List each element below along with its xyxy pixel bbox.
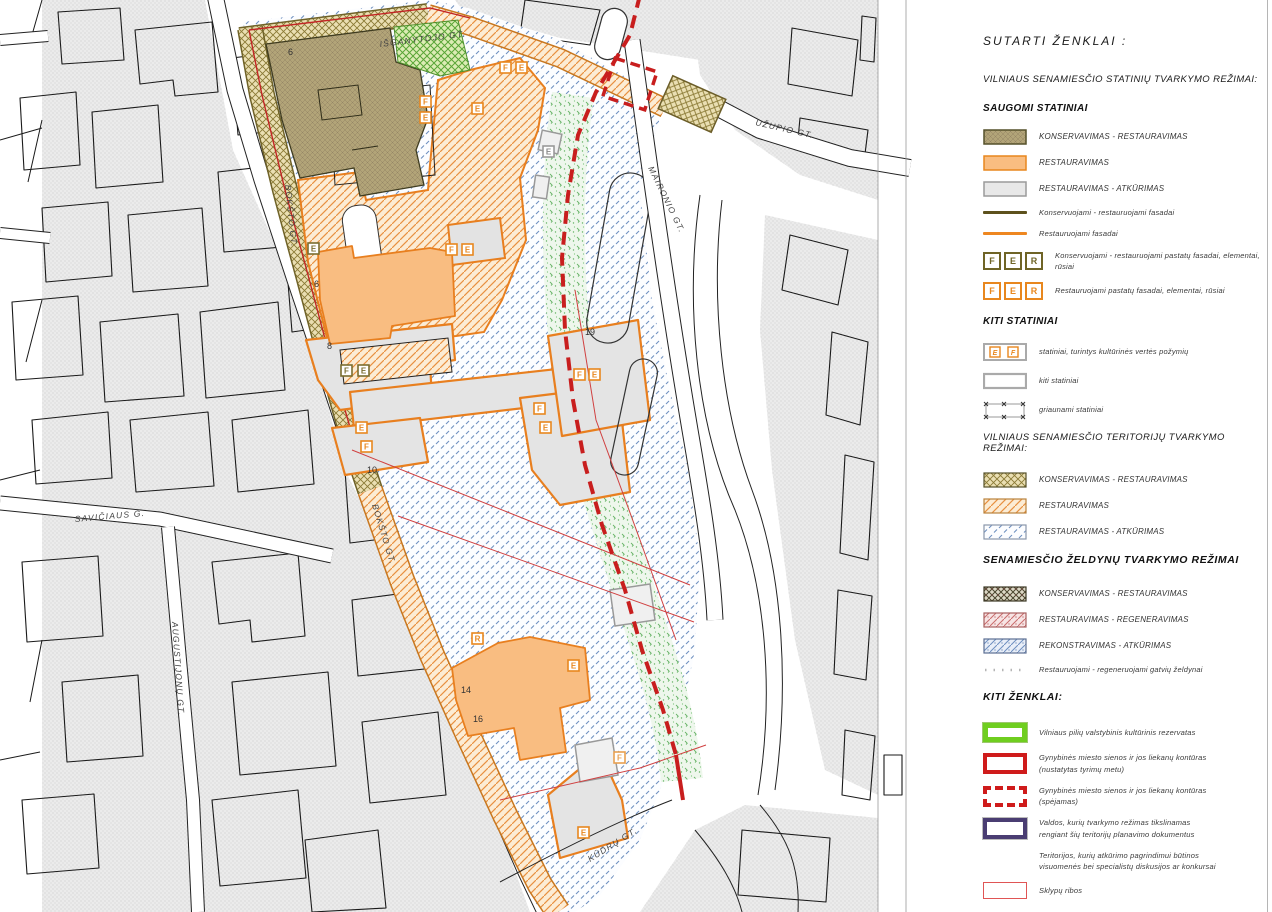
swatch-demolish [983,400,1027,420]
marker-letter: E [546,148,552,157]
swatch-purple-estate [983,818,1027,839]
marker-letter: R [475,635,481,644]
marker-letter: E [543,424,549,433]
swatch-olive-building [983,129,1027,145]
marker-letter: F [503,64,508,73]
plan-sheet: F E E F E E F E F E E F F E F E E R E F … [0,0,1272,912]
legend-heading-greenery: SENAMIESČIO ŽELDYNŲ TVARKYMO REŽIMAI [983,554,1265,566]
swatch-parcel-boundary [983,882,1027,899]
marker-letter: E [311,245,317,254]
swatch-empty [983,855,1027,868]
legend-heading-buildings: VILNIAUS SENAMIESČIO STATINIŲ TVARKYMO R… [983,74,1265,85]
legend-item: Gynybinės miesto sienos ir jos liekanų k… [983,785,1265,808]
legend-item: KONSERVAVIMAS - RESTAURAVIMAS [983,472,1265,488]
legend-heading-other: KITI ŽENKLAI: [983,691,1265,703]
plot-number: 10 [367,465,377,475]
legend-item-label: Konservuojami - restauruojami fasadai [1039,207,1174,218]
swatch-orange-line [983,232,1027,235]
swatch-red-wall [983,753,1027,774]
legend-item-label: RESTAURAVIMAS [1039,500,1109,512]
marker-letter: F [423,98,428,107]
marker-letter: E [571,662,577,671]
legend-item: Restauruojami - regeneruojami gatvių žel… [983,664,1265,675]
legend-item: Sklypų ribos [983,882,1265,899]
marker-letter: E [423,114,429,123]
legend-item-label: Vilniaus pilių valstybinis kultūrinis re… [1039,727,1196,738]
marker-letter: F [617,754,622,763]
legend-item-label: REKONSTRAVIMAS - ATKŪRIMAS [1039,640,1171,652]
marker-letter: F [537,405,542,414]
legend-item-label: Valdos, kurių tvarkymo režimas tikslinam… [1039,817,1195,840]
legend-item-label: Restauruojami - regeneruojami gatvių žel… [1039,664,1203,675]
legend-item: KONSERVAVIMAS - RESTAURAVIMAS [983,129,1265,145]
fer-symbol-olive: F E R [983,252,1043,270]
legend-item: RESTAURAVIMAS - ATKŪRIMAS [983,181,1265,197]
legend-item: Restauruojami fasadai [983,228,1265,239]
city-map: F E E F E E F E F E E F F E F E E R E F … [0,0,955,912]
legend-heading-territories: VILNIAUS SENAMIESČIO TERITORIJŲ TVARKYMO… [983,432,1265,454]
fer-box: F [983,252,1001,270]
legend-item-label: Gynybinės miesto sienos ir jos liekanų k… [1039,785,1206,808]
legend-item-label: KONSERVAVIMAS - RESTAURAVIMAS [1039,588,1188,600]
swatch-green-reserve [983,723,1027,742]
legend-item: RESTAURAVIMAS [983,155,1265,171]
legend-item-label: Teritorijos, kurių atkūrimo pagrindimui … [1039,850,1216,873]
swatch-blue-hatch [983,524,1027,540]
fer-box: E [1004,252,1022,270]
legend-item-label: kiti statiniai [1039,375,1078,386]
legend-item: Teritorijos, kurių atkūrimo pagrindimui … [983,850,1265,873]
legend-subheading-saugomi: SAUGOMI STATINIAI [983,103,1265,114]
legend-item: kiti statiniai [983,372,1265,390]
legend-heading-kiti-statiniai: KITI STATINIAI [983,316,1265,327]
swatch-red-wall-dashed [983,786,1027,807]
fer-box: F [983,282,1001,300]
legend-item: Vilniaus pilių valstybinis kultūrinis re… [983,723,1265,742]
legend-item: F E R Restauruojami pastatų fasadai, ele… [983,282,1265,300]
plot-number: 8 [327,341,332,351]
swatch-blue-dot-hatch [983,638,1027,654]
legend-item: KONSERVAVIMAS - RESTAURAVIMAS [983,586,1265,602]
swatch-cultural-value: E F [983,342,1027,362]
legend-item: Konservuojami - restauruojami fasadai [983,207,1265,218]
marker-letter: E [475,105,481,114]
legend-title: SUTARTI ŽENKLAI : [983,34,1265,48]
fer-symbol-orange: F E R [983,282,1043,300]
legend-item-label: statiniai, turintys kultūrinės vertės po… [1039,346,1188,357]
legend-item: REKONSTRAVIMAS - ATKŪRIMAS [983,638,1265,654]
legend-item-label: Konservuojami - restauruojami pastatų fa… [1055,250,1265,273]
marker-letter: E [519,64,525,73]
plot-number: 6 [314,279,319,289]
marker-letter: E [465,246,471,255]
swatch-orange-building [983,155,1027,171]
legend-item-label: RESTAURAVIMAS - ATKŪRIMAS [1039,183,1164,195]
legend-item-label: KONSERVAVIMAS - RESTAURAVIMAS [1039,131,1188,143]
legend-item: griaunami statiniai [983,400,1265,420]
legend-item-label: Restauruojami pastatų fasadai, elementai… [1055,285,1225,296]
plot-number: 16 [473,714,483,724]
fer-box: R [1025,282,1043,300]
swatch-orange-hatch [983,498,1027,514]
legend-item: RESTAURAVIMAS - REGENERAVIMAS [983,612,1265,628]
legend-panel: SUTARTI ŽENKLAI : VILNIAUS SENAMIESČIO S… [983,34,1265,909]
marker-letter: E [359,424,365,433]
marker-letter: E [361,367,367,376]
marker-letter: F [364,443,369,452]
marker-letter: E [581,829,587,838]
legend-item-label: Sklypų ribos [1039,885,1082,896]
legend-item: RESTAURAVIMAS [983,498,1265,514]
plot-number: 19 [585,327,595,337]
swatch-other-building [983,372,1027,390]
sheet-border [1267,0,1268,912]
marker-letter: F [449,246,454,255]
plot-number: 6 [288,47,293,57]
legend-item: E F statiniai, turintys kultūrinės vertė… [983,342,1265,362]
fer-box: R [1025,252,1043,270]
legend-item: F E R Konservuojami - restauruojami past… [983,250,1265,273]
swatch-olive-line [983,211,1027,214]
legend-item-label: Gynybinės miesto sienos ir jos liekanų k… [1039,752,1206,775]
legend-item-label: RESTAURAVIMAS [1039,157,1109,169]
marker-letter: F [577,371,582,380]
swatch-gray-building [983,181,1027,197]
legend-item-label: RESTAURAVIMAS - ATKŪRIMAS [1039,526,1164,538]
marker-letter: E [592,371,598,380]
legend-item-label: Restauruojami fasadai [1039,228,1118,239]
legend-item-label: RESTAURAVIMAS - REGENERAVIMAS [1039,614,1189,626]
swatch-pink-hatch [983,612,1027,628]
ef-letter: E [993,350,998,357]
swatch-olive-crosshatch [983,472,1027,488]
plot-number: 14 [461,685,471,695]
swatch-dotted-line [983,665,1027,675]
swatch-dark-crosshatch [983,586,1027,602]
ef-letter: F [1011,350,1016,357]
legend-item: Valdos, kurių tvarkymo režimas tikslinam… [983,817,1265,840]
marker-letter: F [344,367,349,376]
legend-item-label: griaunami statiniai [1039,404,1103,415]
legend-item: Gynybinės miesto sienos ir jos liekanų k… [983,752,1265,775]
legend-item: RESTAURAVIMAS - ATKŪRIMAS [983,524,1265,540]
legend-item-label: KONSERVAVIMAS - RESTAURAVIMAS [1039,474,1188,486]
fer-box: E [1004,282,1022,300]
